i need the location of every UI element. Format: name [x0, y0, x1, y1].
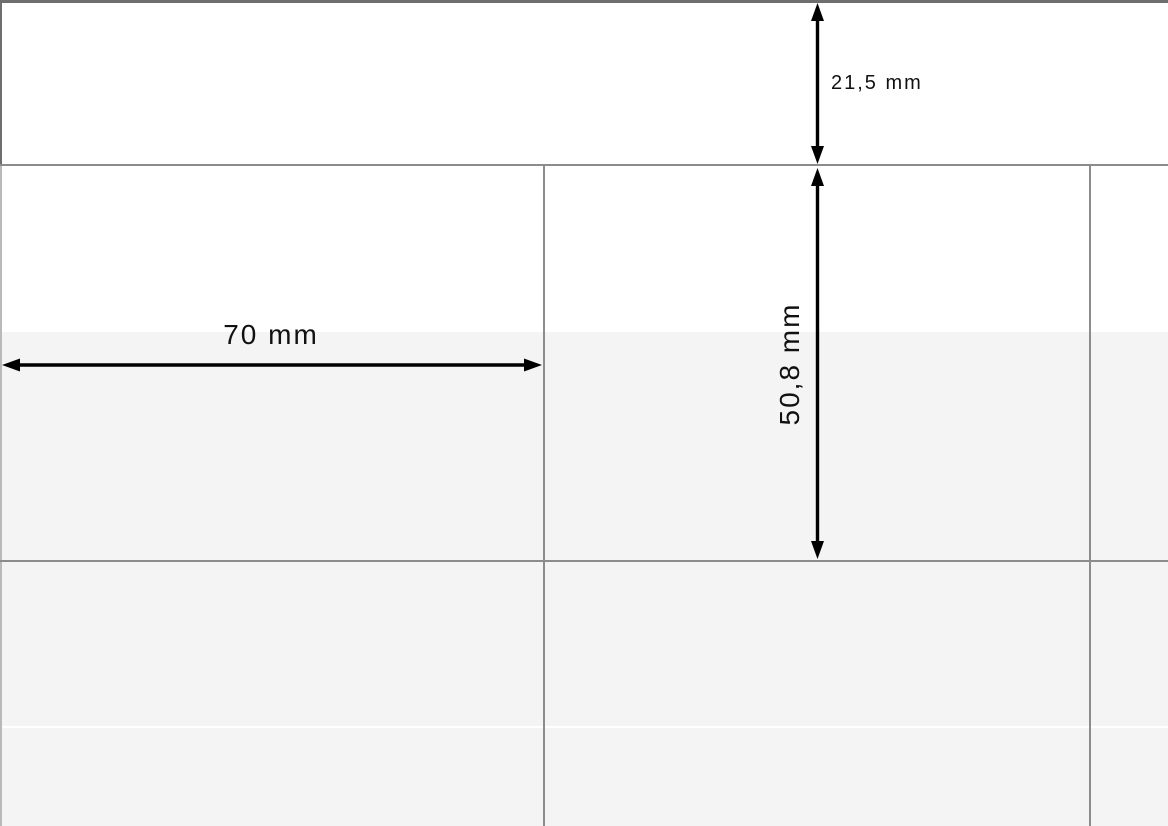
label-width-dimension-label: 70 mm [191, 318, 351, 351]
label-sheet-preview: 21,5 mm 70 mm 50,8 mm [0, 0, 1168, 826]
label-width-dimension-arrow [2, 359, 542, 372]
dimension-arrows [0, 0, 1168, 826]
top-margin-dimension-arrow [811, 3, 824, 164]
top-margin-dimension-label: 21,5 mm [831, 71, 923, 95]
label-height-dimension-arrow [811, 168, 824, 559]
label-height-dimension-label: 50,8 mm [775, 294, 805, 434]
